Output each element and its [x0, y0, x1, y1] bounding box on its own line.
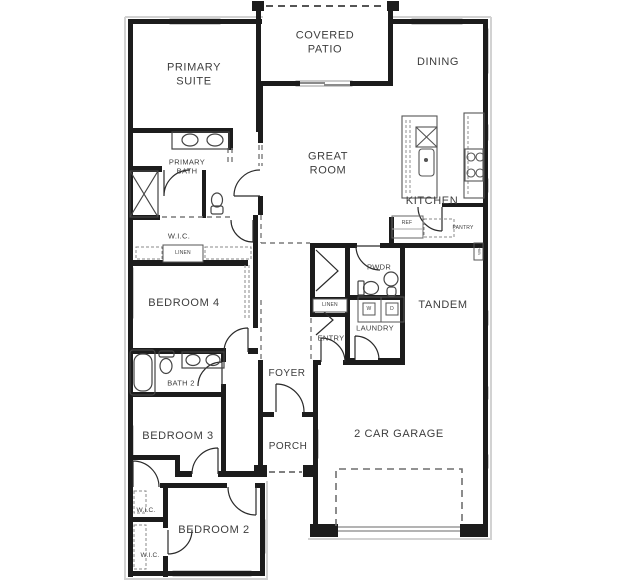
room-label-tandem: TANDEM	[418, 299, 467, 313]
range-counter	[464, 113, 484, 198]
label-linen-primary: LINEN	[175, 250, 191, 256]
room-label-pwdr: PWDR	[367, 262, 391, 271]
garage-door-dashed	[336, 469, 462, 531]
label-washer: W	[367, 306, 372, 312]
floor-plan-drawing	[0, 0, 617, 582]
primary-toilet	[211, 193, 223, 214]
room-label-kitchen: KITCHEN	[406, 195, 458, 209]
floor-plan: COVERED PATIO PRIMARY SUITE DINING GREAT…	[0, 0, 617, 582]
pwdr-sink	[384, 272, 398, 296]
pwdr-toilet	[358, 281, 379, 295]
label-water-heater: W/H	[476, 247, 481, 255]
room-label-porch: PORCH	[269, 441, 308, 454]
label-pantry: PANTRY	[452, 225, 473, 231]
room-label-bedroom-4: BEDROOM 4	[148, 297, 219, 311]
room-label-bedroom-3: BEDROOM 3	[142, 430, 213, 444]
room-label-bedroom-2: BEDROOM 2	[178, 524, 249, 538]
bath2-vanity	[182, 352, 224, 368]
sliding-door	[296, 81, 352, 86]
room-label-wic-bedroom2: W.I.C.	[141, 552, 160, 560]
room-label-primary-bath: PRIMARY BATH	[169, 158, 205, 177]
room-label-bath-2: BATH 2	[167, 378, 195, 387]
label-dryer: D	[390, 306, 394, 312]
room-label-primary-suite: PRIMARY SUITE	[167, 61, 221, 89]
primary-vanity	[172, 132, 229, 149]
room-label-entry: ENTRY	[318, 333, 345, 342]
label-linen-hall: LINEN	[322, 302, 338, 308]
room-label-foyer: FOYER	[269, 368, 306, 381]
room-label-wic-hall: W.I.C.	[137, 507, 156, 515]
shower	[130, 171, 158, 217]
room-label-dining: DINING	[417, 56, 459, 70]
bath2-toilet	[159, 351, 174, 374]
bathtub	[130, 350, 155, 395]
kitchen-island	[402, 116, 437, 198]
room-label-wic-primary: W.I.C.	[168, 231, 190, 240]
room-label-covered-patio: COVERED PATIO	[296, 29, 355, 57]
room-label-garage: 2 CAR GARAGE	[354, 428, 444, 442]
room-label-great-room: GREAT ROOM	[308, 150, 348, 178]
room-label-laundry: LAUNDRY	[356, 323, 394, 332]
closet-chevrons	[316, 250, 338, 335]
label-ref: REF	[402, 220, 413, 226]
